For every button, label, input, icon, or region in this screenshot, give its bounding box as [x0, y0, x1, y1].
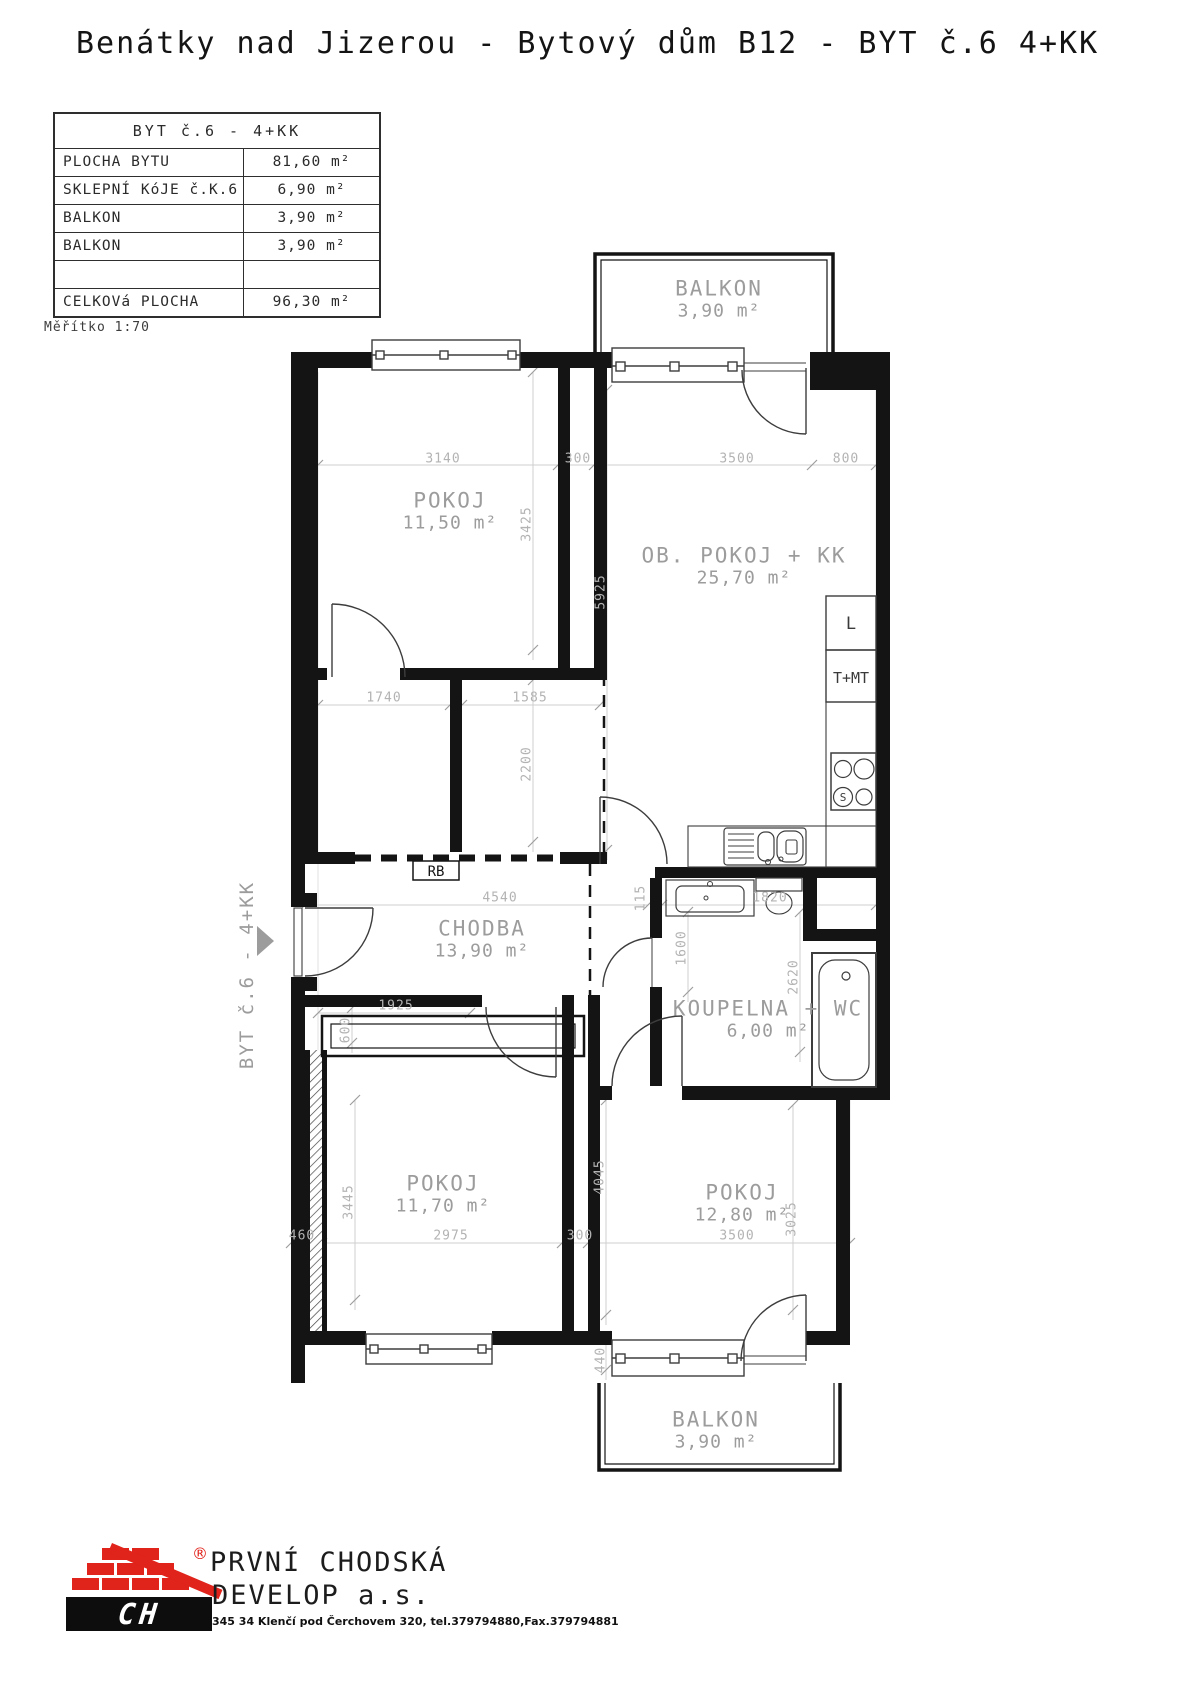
dimension-label: 800	[833, 452, 859, 467]
floorplan-labels: POKOJ11,50 m²OB. POKOJ + KK25,70 m²CHODB…	[0, 0, 1190, 1684]
dimension-label: 1600	[675, 930, 690, 965]
dimension-label: 5925	[594, 574, 609, 609]
dimension-label: 3025	[785, 1201, 800, 1236]
dimension-label: 1820	[752, 891, 787, 906]
company-name-line2: DEVELOP a.s.	[212, 1580, 431, 1611]
entrance-label: BYT č.6 - 4+KK	[236, 881, 258, 1069]
logo-monogram: CH	[66, 1597, 212, 1631]
room-label: POKOJ12,80 m²	[695, 1181, 790, 1226]
dimension-label: 300	[565, 452, 591, 467]
dimension-label: 3500	[719, 452, 754, 467]
dimension-label: 1925	[378, 999, 413, 1014]
company-name-line1: PRVNÍ CHODSKÁ	[210, 1547, 447, 1578]
dimension-label: 2975	[433, 1229, 468, 1244]
company-address: 345 34 Klenčí pod Čerchovem 320, tel.379…	[212, 1615, 619, 1628]
dimension-label: 600	[339, 1017, 354, 1043]
dimension-label: 4540	[482, 891, 517, 906]
dimension-label: 440	[594, 1347, 609, 1373]
room-label: BALKON3,90 m²	[675, 277, 763, 322]
dimension-label: 3445	[342, 1184, 357, 1219]
registered-mark: ®	[192, 1544, 208, 1563]
dimension-label: 300	[567, 1229, 593, 1244]
dimension-label: 4045	[593, 1159, 608, 1194]
room-label: CHODBA13,90 m²	[435, 917, 530, 962]
dimension-label: 460	[289, 1229, 315, 1244]
dimension-label: 3500	[719, 1229, 754, 1244]
dimension-label: 115	[634, 885, 649, 911]
room-label: OB. POKOJ + KK25,70 m²	[641, 544, 846, 589]
dimension-label: 1585	[512, 691, 547, 706]
entrance-arrow-icon	[257, 926, 274, 956]
drawing-sheet: Benátky nad Jizerou - Bytový dům B12 - B…	[0, 0, 1190, 1684]
dimension-label: 2200	[520, 746, 535, 781]
room-label: POKOJ11,50 m²	[403, 489, 498, 534]
room-label: KOUPELNA + WC6,00 m²	[673, 997, 863, 1042]
dimension-label: 3140	[425, 452, 460, 467]
dimension-label: 3425	[520, 506, 535, 541]
room-label: BALKON3,90 m²	[672, 1408, 760, 1453]
dimension-label: 2620	[787, 959, 802, 994]
room-label: POKOJ11,70 m²	[396, 1172, 491, 1217]
dimension-label: 1740	[366, 691, 401, 706]
